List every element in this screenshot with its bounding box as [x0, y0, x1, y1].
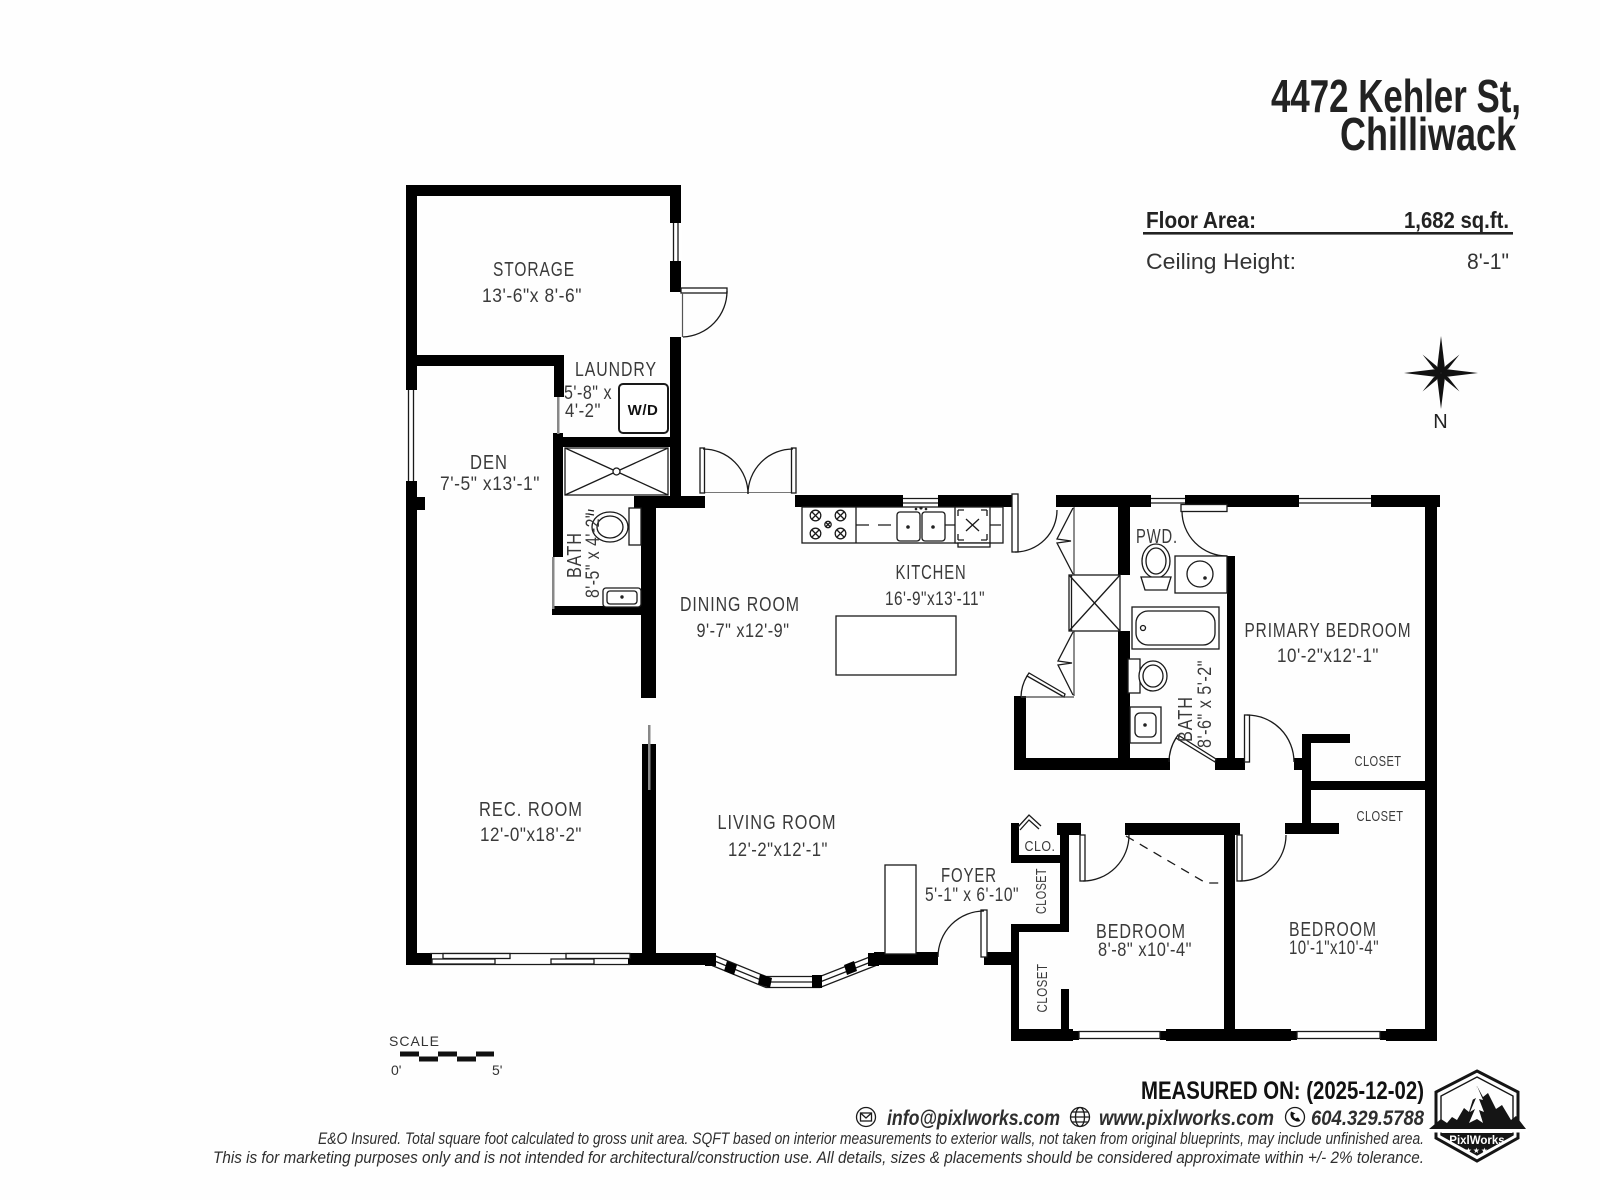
svg-text:MEASURED ON: (2025-12-02): MEASURED ON: (2025-12-02) — [1141, 1077, 1424, 1105]
svg-text:REC. ROOM: REC. ROOM — [479, 799, 583, 821]
svg-text:DINING ROOM: DINING ROOM — [680, 594, 800, 616]
svg-text:13'-6"x 8'-6": 13'-6"x 8'-6" — [482, 286, 582, 307]
svg-text:W/D: W/D — [628, 402, 659, 419]
svg-text:CLOSET: CLOSET — [1033, 868, 1050, 914]
svg-text:604.329.5788: 604.329.5788 — [1311, 1107, 1424, 1130]
svg-text:CLOSET: CLOSET — [1357, 808, 1404, 825]
svg-text:10'-1"x10'-4": 10'-1"x10'-4" — [1289, 938, 1379, 959]
svg-text:12'-2"x12'-1": 12'-2"x12'-1" — [728, 840, 828, 861]
svg-text:www.pixlworks.com: www.pixlworks.com — [1099, 1107, 1274, 1130]
svg-text:info@pixlworks.com: info@pixlworks.com — [887, 1107, 1060, 1130]
svg-text:16'-9"x13'-11": 16'-9"x13'-11" — [885, 589, 985, 610]
svg-text:LAUNDRY: LAUNDRY — [575, 359, 657, 381]
svg-text:LIVING ROOM: LIVING ROOM — [718, 812, 837, 834]
svg-text:4'-2": 4'-2" — [565, 401, 601, 422]
svg-text:N: N — [1433, 411, 1448, 433]
svg-text:BATH: BATH — [1175, 696, 1197, 742]
svg-text:KITCHEN: KITCHEN — [896, 562, 967, 584]
svg-text:8'-5" x 4'-2": 8'-5" x 4'-2" — [583, 512, 604, 598]
svg-text:10'-2"x12'-1": 10'-2"x12'-1" — [1277, 646, 1379, 667]
svg-text:8'-8" x10'-4": 8'-8" x10'-4" — [1098, 940, 1192, 961]
svg-text:0': 0' — [391, 1062, 401, 1078]
svg-text:Chilliwack: Chilliwack — [1340, 108, 1516, 160]
svg-text:CLOSET: CLOSET — [1355, 753, 1402, 770]
svg-text:Floor Area:: Floor Area: — [1146, 207, 1256, 233]
svg-text:8'-1": 8'-1" — [1467, 249, 1509, 274]
svg-text:9'-7" x12'-9": 9'-7" x12'-9" — [697, 621, 790, 642]
svg-text:8'-6" x 5'-2": 8'-6" x 5'-2" — [1195, 660, 1216, 748]
svg-text:E&O Insured. Total square foo: E&O Insured. Total square foot calculate… — [318, 1130, 1424, 1148]
svg-text:CLO.: CLO. — [1025, 838, 1056, 855]
svg-text:★★★: ★★★ — [1465, 1146, 1489, 1155]
svg-text:This is for marketing purposes: This is for marketing purposes only and … — [213, 1149, 1424, 1167]
svg-text:CLOSET: CLOSET — [1034, 964, 1051, 1013]
svg-text:5': 5' — [492, 1062, 502, 1078]
svg-text:1,682 sq.ft.: 1,682 sq.ft. — [1404, 207, 1509, 233]
svg-text:DEN: DEN — [470, 452, 508, 474]
svg-text:7'-5" x13'-1": 7'-5" x13'-1" — [440, 474, 540, 495]
svg-text:FOYER: FOYER — [941, 865, 997, 887]
svg-text:Ceiling Height:: Ceiling Height: — [1146, 249, 1296, 274]
svg-text:5'-1" x 6'-10": 5'-1" x 6'-10" — [925, 885, 1019, 906]
svg-text:PWD.: PWD. — [1136, 526, 1178, 548]
svg-text:SCALE: SCALE — [389, 1033, 440, 1049]
svg-text:12'-0"x18'-2": 12'-0"x18'-2" — [480, 825, 582, 846]
svg-text:PRIMARY BEDROOM: PRIMARY BEDROOM — [1245, 620, 1412, 642]
svg-text:STORAGE: STORAGE — [493, 259, 575, 281]
